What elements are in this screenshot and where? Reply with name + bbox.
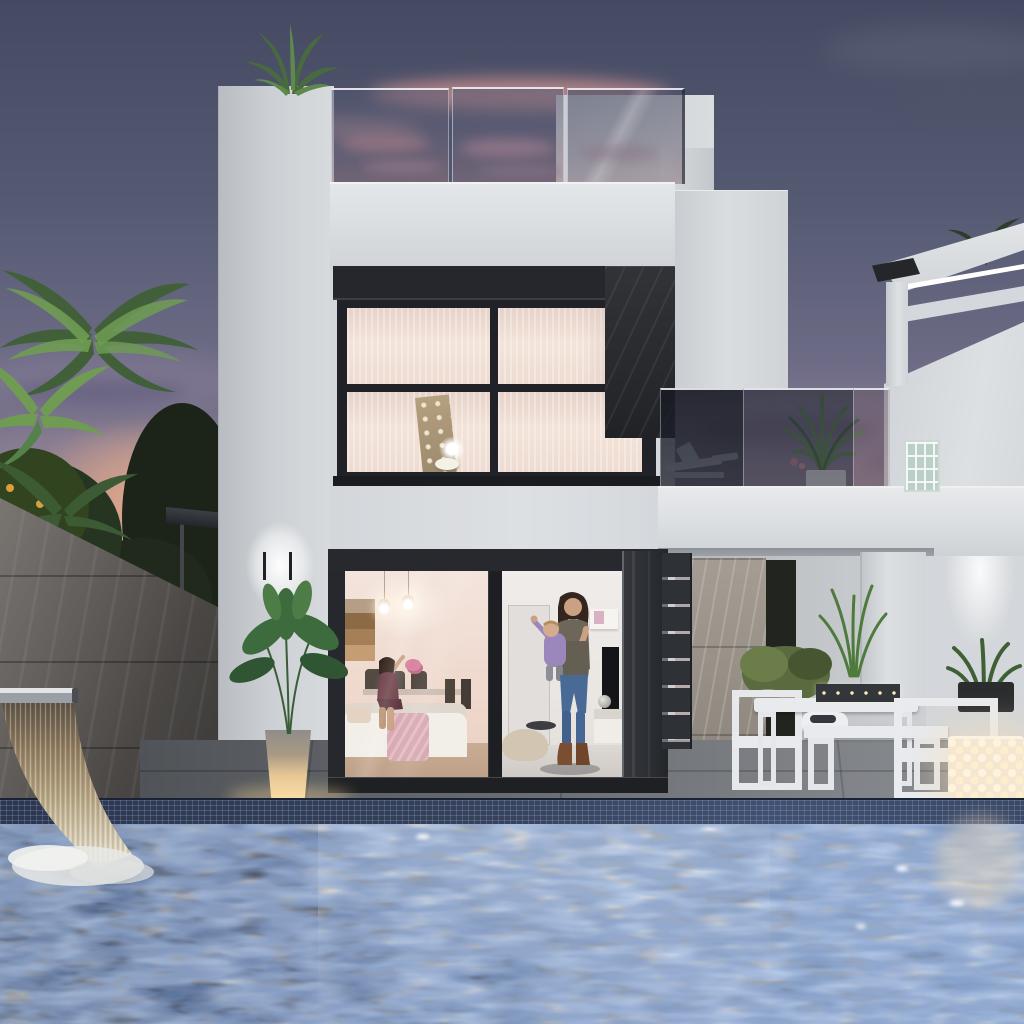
lantern-reflection xyxy=(936,816,1024,908)
water-sparkle xyxy=(896,866,908,871)
villa-side-column xyxy=(673,190,788,390)
neighbor-post xyxy=(886,282,908,386)
roof-plant xyxy=(228,10,352,96)
bench-leg xyxy=(808,738,834,790)
rooftop-railing xyxy=(331,86,687,186)
door-header xyxy=(328,549,668,571)
glass-blocks xyxy=(904,440,940,492)
table-centerpiece xyxy=(816,684,900,702)
water-sparkle xyxy=(416,834,430,839)
water-sparkle xyxy=(950,900,964,906)
window-pane-tl xyxy=(347,308,490,384)
door-threshold xyxy=(328,777,668,793)
dining-table-leg xyxy=(758,712,776,786)
doorway xyxy=(502,571,622,777)
pot-plant xyxy=(222,574,358,744)
water-sparkle xyxy=(856,924,866,929)
balcony-glass-panel xyxy=(660,388,743,492)
louver-door xyxy=(662,553,692,749)
window-pane-bl xyxy=(347,392,490,472)
roof-glass-panel xyxy=(567,88,685,184)
roof-parapet xyxy=(330,182,675,270)
living-room xyxy=(345,571,488,777)
balcony-glass-panel xyxy=(743,388,853,492)
window-sill xyxy=(333,476,660,486)
door-mullion xyxy=(488,571,502,777)
waterfall xyxy=(0,682,180,892)
white-flowers xyxy=(435,458,459,470)
shower-pole xyxy=(180,516,184,596)
scene-root xyxy=(0,0,1024,1024)
sliding-door xyxy=(328,549,668,793)
mother-and-baby xyxy=(524,581,614,777)
balcony xyxy=(658,378,898,494)
balcony-glass-panel xyxy=(853,388,890,492)
roof-glass-panel xyxy=(452,87,564,184)
lantern xyxy=(948,736,1024,802)
glass-sheen xyxy=(345,571,488,777)
roof-glass-panel xyxy=(331,88,449,184)
